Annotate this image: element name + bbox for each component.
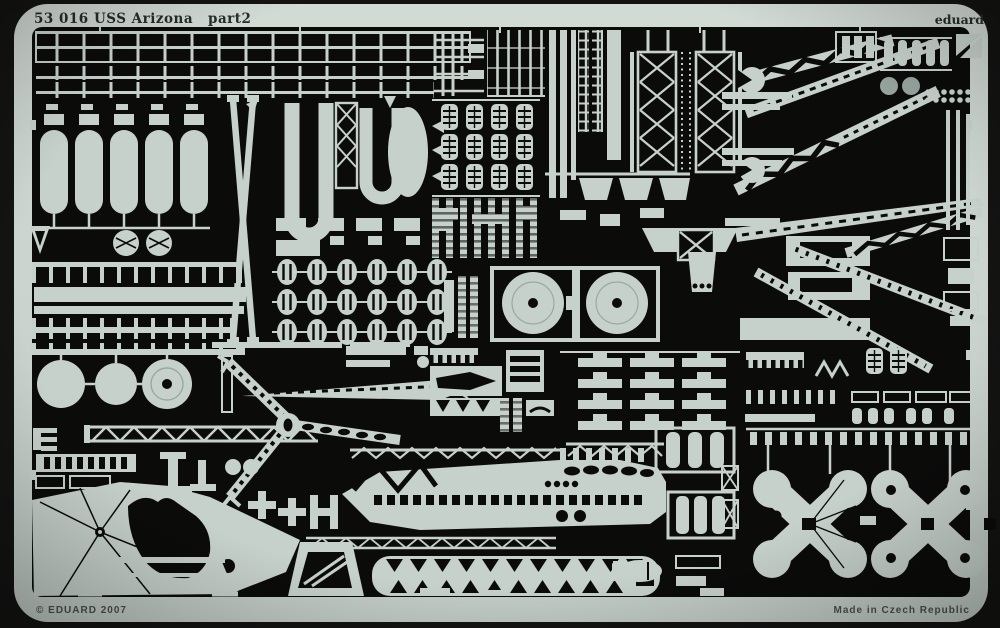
photo-vignette [0,0,1000,628]
fret-sheet-graphic: 53 016 USS Arizona part2 eduard © EDUARD… [0,0,1000,628]
photo-etch-sheet-photo: 53 016 USS Arizona part2 eduard © EDUARD… [0,0,1000,628]
